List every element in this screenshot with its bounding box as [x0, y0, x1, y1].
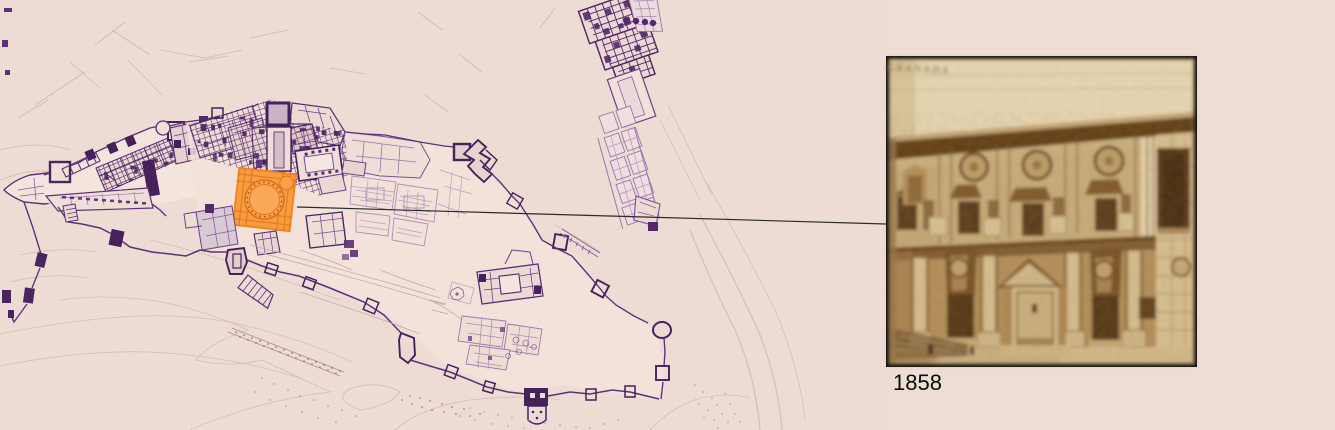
svg-text:1858: 1858: [893, 370, 942, 395]
